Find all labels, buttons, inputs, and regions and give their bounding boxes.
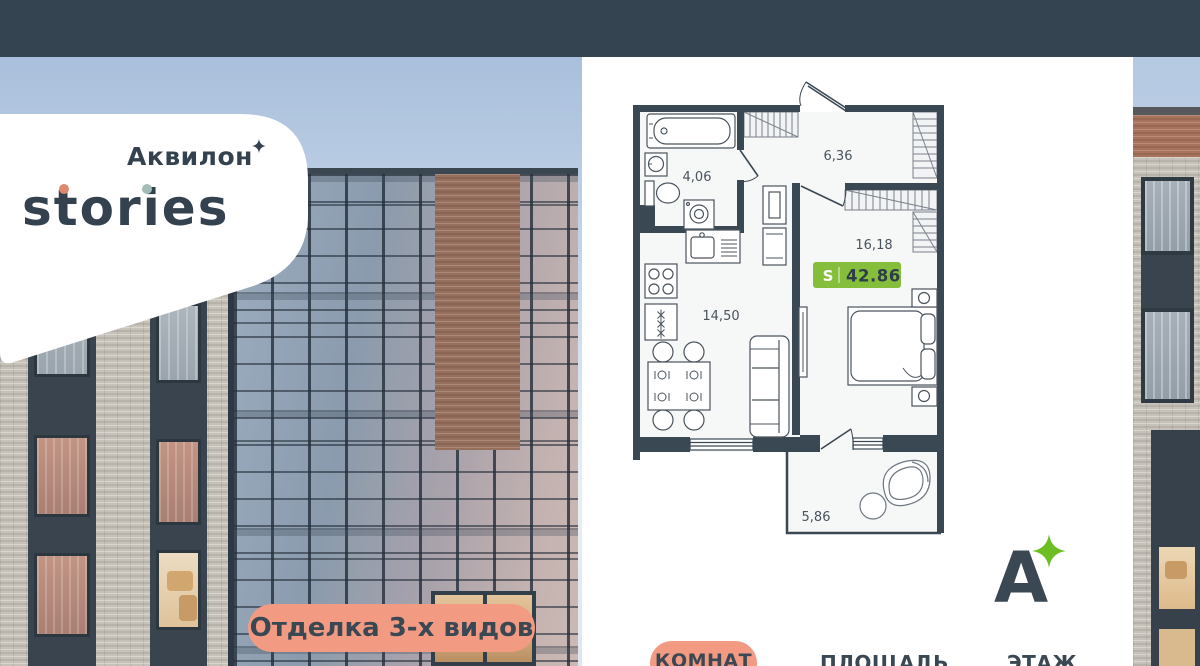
orange-brick-band — [1133, 115, 1200, 157]
sofa — [750, 336, 789, 437]
window — [34, 435, 90, 517]
lit-window — [156, 550, 201, 630]
bedroom-window — [853, 438, 883, 449]
area-label-bathroom: 4,06 — [683, 170, 712, 185]
lit-window — [1159, 547, 1195, 609]
area-label-room: 16,18 — [855, 238, 892, 253]
bathtub — [647, 114, 735, 148]
brand-name: Аквилон — [127, 142, 253, 171]
building-photo-right — [1133, 57, 1200, 666]
brown-brick-pier — [435, 168, 520, 450]
footer-floor-label: ЭТАЖ — [1007, 651, 1077, 666]
furniture-silhouette — [179, 595, 197, 621]
footer-area-label: ПЛОЩАДЬ — [820, 651, 949, 666]
bedroom-wardrobe-top — [845, 190, 937, 210]
logo-dot-salmon — [59, 184, 69, 194]
brand-product: stories — [22, 179, 229, 237]
spandrel-panel — [1141, 255, 1194, 308]
feature-badge-label: Отделка 3-х видов — [250, 613, 534, 643]
ottoman — [860, 493, 886, 519]
footer-rooms-label: КОМНАТ — [655, 650, 752, 666]
parapet — [1133, 107, 1200, 115]
building-photo-left: Аквилон stories Отделка 3-х видов Больши… — [0, 57, 582, 666]
bathroom-sink — [645, 153, 667, 176]
nightstand-bottom — [912, 387, 937, 406]
floor-plan: 4,06 6,36 16,18 14,50 5,86 S 42.86 — [578, 57, 1133, 666]
footer-rooms-badge: КОМНАТ — [650, 641, 757, 666]
total-area-badge: S 42.86 — [813, 262, 901, 288]
kitchen-sink-unit — [686, 230, 740, 263]
total-area-prefix: S — [823, 267, 834, 285]
area-label-hall: 6,36 — [824, 149, 853, 164]
hall-wardrobe-left — [744, 112, 798, 137]
total-area-value: 42.86 — [846, 267, 901, 286]
window — [34, 553, 90, 637]
bedroom-wardrobe-right — [913, 212, 937, 252]
bed — [848, 307, 937, 385]
dining-table — [648, 362, 710, 410]
listing-card: Аквилон stories Отделка 3-х видов Больши… — [0, 0, 1200, 666]
area-label-balcony: 5,86 — [802, 510, 831, 525]
washing-machine — [684, 200, 714, 229]
lit-window — [1159, 629, 1195, 666]
hall-wardrobe-right — [913, 112, 937, 178]
feature-badge-finishing: Отделка 3-х видов — [248, 604, 535, 652]
brand-sparkle-icon — [252, 139, 266, 153]
fridge — [763, 228, 786, 265]
window-glass — [1145, 181, 1190, 251]
developer-star-icon — [1032, 534, 1066, 568]
kitchen-lower-unit — [645, 304, 677, 340]
kitchen-window — [690, 439, 753, 450]
window — [1141, 308, 1194, 403]
furniture-silhouette — [1165, 561, 1187, 579]
dark-facade-base — [1151, 430, 1200, 666]
tv-panel — [799, 307, 807, 377]
stove — [645, 264, 677, 298]
window — [156, 439, 201, 525]
header-bar — [0, 0, 1200, 57]
entrance-door — [800, 82, 846, 111]
window — [1141, 177, 1194, 255]
area-label-kitchen: 14,50 — [702, 309, 739, 324]
furniture-silhouette — [167, 571, 193, 591]
nightstand-top — [912, 289, 937, 307]
window-glass — [1145, 312, 1190, 399]
tall-cabinet — [763, 186, 786, 224]
logo-dot-teal — [142, 184, 152, 194]
